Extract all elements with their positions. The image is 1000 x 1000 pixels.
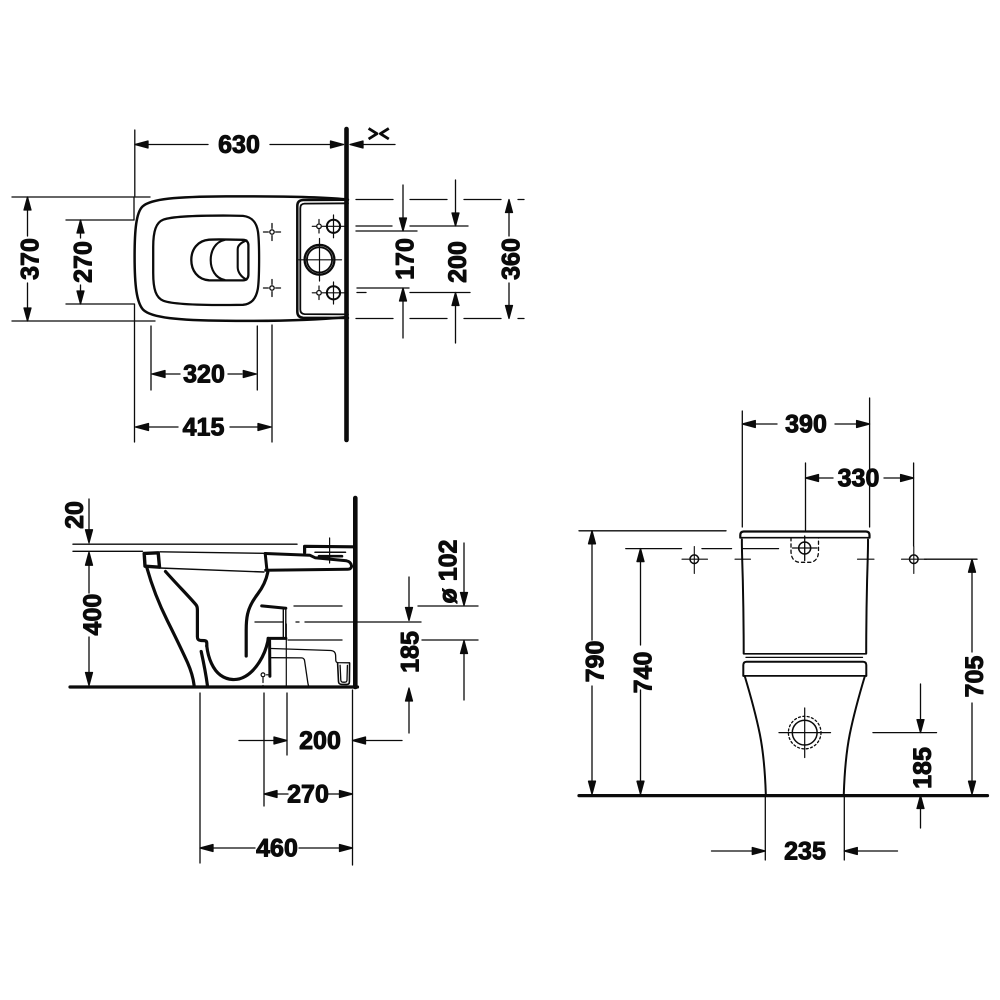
svg-text:705: 705 — [961, 656, 989, 698]
svg-text:790: 790 — [582, 641, 610, 683]
svg-text:270: 270 — [287, 781, 329, 809]
svg-text:235: 235 — [784, 838, 826, 866]
svg-text:185: 185 — [909, 747, 937, 789]
svg-text:20: 20 — [61, 501, 89, 529]
svg-text:200: 200 — [444, 241, 472, 283]
svg-text:400: 400 — [79, 594, 107, 636]
svg-text:360: 360 — [498, 238, 526, 280]
svg-text:415: 415 — [183, 414, 225, 442]
svg-text:200: 200 — [299, 727, 341, 755]
svg-text:740: 740 — [630, 652, 658, 694]
svg-text:ø 102: ø 102 — [435, 540, 463, 604]
svg-text:320: 320 — [183, 361, 225, 389]
svg-text:630: 630 — [218, 131, 260, 159]
svg-text:270: 270 — [70, 241, 98, 283]
svg-text:170: 170 — [392, 238, 420, 280]
svg-text:390: 390 — [785, 411, 827, 439]
svg-text:460: 460 — [256, 835, 298, 863]
svg-text:370: 370 — [17, 238, 45, 280]
svg-text:185: 185 — [397, 631, 425, 673]
svg-text:330: 330 — [838, 465, 880, 493]
